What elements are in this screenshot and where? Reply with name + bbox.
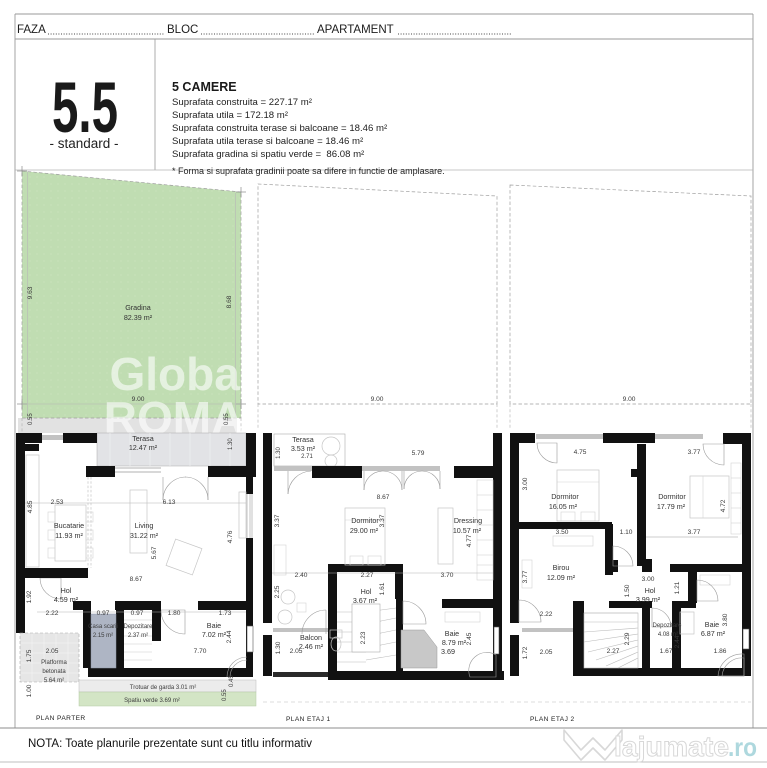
svg-text:Baie: Baie [705, 620, 719, 629]
svg-text:Hol: Hol [361, 587, 372, 596]
svg-text:2.22: 2.22 [540, 611, 553, 618]
svg-text:Suprafata utila terase si balc: Suprafata utila terase si balcoane = 18.… [172, 136, 364, 147]
svg-text:APARTAMENT: APARTAMENT [317, 24, 394, 36]
svg-text:Dressing: Dressing [454, 516, 482, 525]
svg-text:2.29: 2.29 [624, 632, 631, 645]
svg-text:31.22 m²: 31.22 m² [130, 531, 159, 540]
svg-text:PLAN ETAJ 2: PLAN ETAJ 2 [530, 716, 575, 723]
svg-text:1.75: 1.75 [26, 649, 33, 662]
svg-text:4.75: 4.75 [574, 449, 587, 456]
svg-text:1.30: 1.30 [276, 447, 282, 459]
svg-text:1.80: 1.80 [168, 610, 181, 617]
svg-text:2.27: 2.27 [607, 648, 620, 655]
svg-text:3.37: 3.37 [274, 514, 281, 527]
svg-text:Dormitor: Dormitor [351, 516, 379, 525]
svg-text:9.00: 9.00 [371, 396, 384, 403]
svg-text:5 CAMERE: 5 CAMERE [172, 80, 237, 94]
svg-text:8.79 m²: 8.79 m² [442, 638, 467, 647]
svg-text:3.67 m²: 3.67 m² [353, 596, 378, 605]
svg-text:- standard -: - standard - [49, 136, 118, 151]
svg-text:Bucatarie: Bucatarie [54, 521, 84, 530]
svg-text:6.87 m²: 6.87 m² [701, 629, 726, 638]
svg-text:Casa scarii: Casa scarii [88, 624, 118, 630]
svg-text:2.15 m²: 2.15 m² [93, 633, 113, 639]
svg-text:2.23: 2.23 [360, 631, 367, 644]
svg-text:2.25: 2.25 [274, 585, 281, 598]
svg-text:10.57 m²: 10.57 m² [453, 526, 482, 535]
svg-text:3.37: 3.37 [379, 514, 386, 527]
svg-text:3.77: 3.77 [522, 570, 529, 583]
svg-text:Baie: Baie [445, 629, 459, 638]
svg-text:3.70: 3.70 [441, 572, 454, 579]
svg-text:1.72: 1.72 [522, 646, 529, 659]
svg-text:Birou: Birou [553, 563, 570, 572]
svg-text:PLAN ETAJ 1: PLAN ETAJ 1 [286, 716, 331, 723]
svg-text:12.47 m²: 12.47 m² [129, 443, 158, 452]
svg-text:2.27: 2.27 [361, 572, 374, 579]
svg-text:1.30: 1.30 [228, 438, 234, 450]
svg-text:.ro: .ro [728, 732, 757, 762]
svg-text:3.50: 3.50 [556, 529, 569, 536]
svg-text:1.61: 1.61 [379, 582, 386, 595]
svg-text:Gradina: Gradina [125, 303, 151, 312]
svg-text:2.53: 2.53 [51, 499, 64, 506]
svg-text:2.44: 2.44 [674, 635, 681, 648]
svg-text:2.05: 2.05 [46, 648, 59, 655]
svg-text:4.85: 4.85 [27, 500, 34, 513]
svg-text:Depozitare: Depozitare [123, 624, 153, 630]
svg-text:FAZA: FAZA [17, 24, 46, 36]
svg-text:3.99 m²: 3.99 m² [636, 595, 661, 604]
svg-text:2.71: 2.71 [301, 454, 313, 460]
svg-text:1.10: 1.10 [620, 529, 633, 536]
svg-text:Platforma: Platforma [41, 660, 67, 666]
svg-text:betonata: betonata [42, 669, 66, 675]
svg-text:0.97: 0.97 [97, 610, 110, 617]
svg-text:Baie: Baie [207, 621, 221, 630]
svg-text:Suprafata construita terase si: Suprafata construita terase si balcoane … [172, 123, 388, 134]
svg-text:0.55: 0.55 [28, 413, 34, 425]
svg-text:16.05 m²: 16.05 m² [549, 502, 578, 511]
svg-text:1.67: 1.67 [660, 648, 673, 655]
svg-text:Depozitare: Depozitare [652, 623, 682, 629]
svg-text:0.55: 0.55 [224, 413, 230, 425]
svg-text:Hol: Hol [61, 586, 72, 595]
svg-text:3.53 m²: 3.53 m² [291, 444, 316, 453]
svg-text:Suprafata utila = 172.18 m²: Suprafata utila = 172.18 m² [172, 110, 289, 121]
svg-text:5.64 m²: 5.64 m² [44, 678, 64, 684]
svg-text:2.37 m²: 2.37 m² [128, 633, 148, 639]
svg-text:7.02 m²: 7.02 m² [202, 630, 227, 639]
svg-text:Dormitor: Dormitor [551, 492, 579, 501]
svg-text:1.86: 1.86 [714, 648, 727, 655]
svg-text:1.30: 1.30 [275, 641, 282, 654]
svg-text:Terasa: Terasa [132, 434, 154, 443]
svg-text:11.93 m²: 11.93 m² [55, 531, 83, 540]
svg-text:5.67: 5.67 [151, 546, 158, 559]
svg-text:3.69: 3.69 [441, 647, 455, 656]
svg-text:8.67: 8.67 [130, 576, 143, 583]
svg-text:0.97: 0.97 [131, 610, 144, 617]
svg-text:4.59 m²: 4.59 m² [54, 595, 79, 604]
svg-text:1.73: 1.73 [219, 610, 232, 617]
svg-text:29.00 m²: 29.00 m² [350, 526, 379, 535]
svg-text:2.46 m²: 2.46 m² [299, 642, 324, 651]
svg-text:PLAN PARTER: PLAN PARTER [36, 715, 86, 722]
svg-text:1.00: 1.00 [26, 684, 33, 697]
svg-text:Hol: Hol [645, 586, 656, 595]
svg-text:9.63: 9.63 [27, 286, 34, 299]
svg-text:4.76: 4.76 [227, 530, 234, 543]
svg-text:2.05: 2.05 [540, 649, 553, 656]
svg-text:1.92: 1.92 [26, 590, 33, 603]
svg-text:7.70: 7.70 [194, 648, 207, 655]
svg-text:Suprafata construita = 227.17: Suprafata construita = 227.17 m² [172, 97, 313, 108]
svg-text:3.77: 3.77 [688, 529, 701, 536]
svg-text:Terasa: Terasa [292, 435, 314, 444]
svg-text:4.77: 4.77 [466, 534, 473, 547]
svg-text:Suprafata gradina si spatiu ve: Suprafata gradina si spatiu verde = 86.0… [172, 149, 365, 160]
svg-text:2.22: 2.22 [46, 610, 59, 617]
svg-text:Spatiu verde 3.69 m²: Spatiu verde 3.69 m² [124, 698, 180, 704]
svg-text:2.45: 2.45 [466, 632, 473, 645]
svg-text:2.05: 2.05 [290, 648, 303, 655]
svg-text:17.79 m²: 17.79 m² [657, 502, 686, 511]
svg-text:8.67: 8.67 [377, 494, 390, 501]
svg-text:12.09 m²: 12.09 m² [547, 573, 576, 582]
svg-text:BLOC: BLOC [167, 24, 198, 36]
svg-text:3.77: 3.77 [688, 449, 701, 456]
svg-text:0.45: 0.45 [229, 675, 235, 687]
svg-text:0.55: 0.55 [222, 689, 228, 701]
svg-text:82.39 m²: 82.39 m² [124, 313, 153, 322]
svg-text:Living: Living [135, 521, 154, 530]
svg-text:4.72: 4.72 [720, 499, 727, 512]
svg-text:5.79: 5.79 [412, 450, 425, 457]
svg-text:1.21: 1.21 [674, 581, 681, 594]
svg-text:8.68: 8.68 [226, 295, 233, 308]
svg-text:2.40: 2.40 [295, 572, 308, 579]
svg-text:* Forma si suprafata gradinii: * Forma si suprafata gradinii poate sa d… [172, 166, 445, 176]
svg-text:9.00: 9.00 [623, 396, 636, 403]
svg-text:3.00: 3.00 [642, 576, 655, 583]
svg-text:Dormitor: Dormitor [658, 492, 686, 501]
svg-text:Trotuar de garda 3.01 m²: Trotuar de garda 3.01 m² [130, 685, 196, 691]
svg-text:3.00: 3.00 [522, 477, 529, 490]
svg-text:Balcon: Balcon [300, 633, 322, 642]
svg-text:1.50: 1.50 [624, 584, 631, 597]
svg-text:3.80: 3.80 [722, 613, 729, 626]
svg-text:6.13: 6.13 [163, 499, 176, 506]
svg-text:2.44: 2.44 [226, 630, 233, 643]
svg-text:lajumate: lajumate [614, 731, 729, 762]
svg-text:NOTA: Toate planurile prezenta: NOTA: Toate planurile prezentate sunt cu… [28, 738, 312, 750]
